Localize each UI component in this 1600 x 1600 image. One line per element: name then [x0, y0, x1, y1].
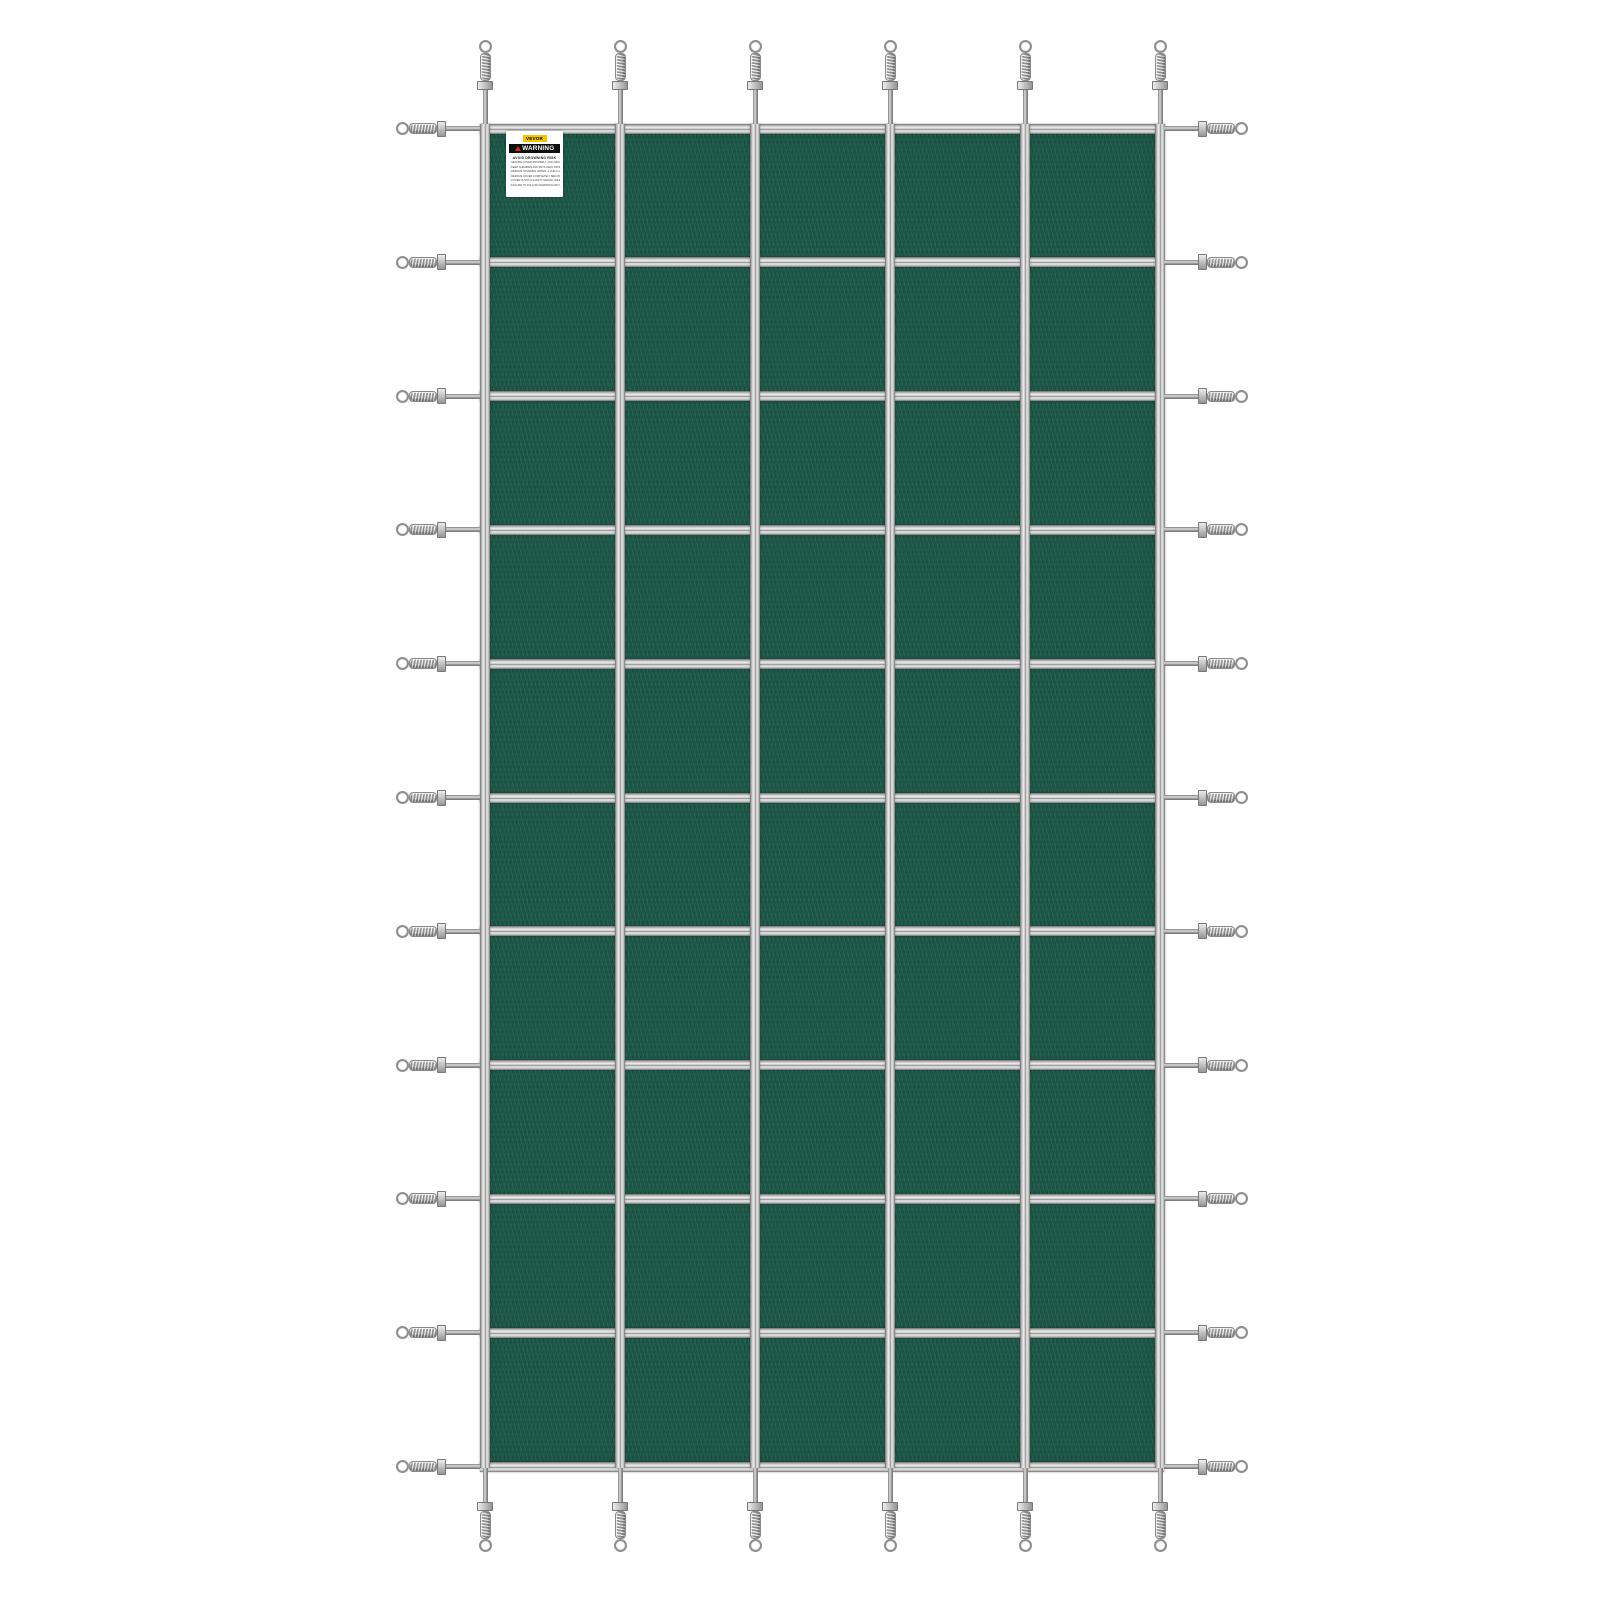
- ring: [1019, 40, 1032, 53]
- spring-anchor: [396, 254, 480, 270]
- horizontal-strap: [480, 391, 1164, 401]
- buckle: [747, 1502, 763, 1511]
- strap-tail: [753, 1468, 758, 1502]
- ring: [614, 1539, 627, 1552]
- coil: [1207, 391, 1235, 402]
- spring-anchor: [1164, 254, 1248, 270]
- strap-tail: [446, 1063, 480, 1068]
- strap-tail: [618, 1468, 623, 1502]
- ring: [396, 256, 409, 269]
- product-photo: VEVOR WARNING AVOID DROWNING RISK • SECU…: [0, 0, 1600, 1600]
- coil: [409, 926, 437, 937]
- ring: [749, 40, 762, 53]
- strap-tail: [618, 90, 623, 124]
- buckle: [1198, 1057, 1207, 1073]
- strap-tail: [446, 126, 480, 131]
- strap-tail: [1164, 929, 1198, 934]
- buckle: [1198, 121, 1207, 137]
- buckle: [1198, 656, 1207, 672]
- buckle: [747, 81, 763, 90]
- strap-tail: [1164, 260, 1198, 265]
- warning-bar: WARNING: [509, 144, 560, 153]
- buckle: [437, 1057, 446, 1073]
- strap-tail: [1023, 90, 1028, 124]
- spring-anchor: [612, 1468, 628, 1552]
- strap-tail: [1158, 90, 1163, 124]
- coil: [1207, 658, 1235, 669]
- horizontal-strap: [480, 124, 1164, 134]
- buckle: [437, 522, 446, 538]
- buckle: [1017, 1502, 1033, 1511]
- coil: [409, 1327, 437, 1338]
- ring: [1019, 1539, 1032, 1552]
- spring-anchor: [396, 121, 480, 137]
- horizontal-strap: [480, 525, 1164, 535]
- coil: [409, 257, 437, 268]
- coil: [1155, 1511, 1166, 1539]
- coil: [409, 123, 437, 134]
- ring: [614, 40, 627, 53]
- horizontal-strap: [480, 926, 1164, 936]
- coil: [409, 1461, 437, 1472]
- coil: [1207, 792, 1235, 803]
- spring-anchor: [1164, 121, 1248, 137]
- ring: [1154, 1539, 1167, 1552]
- ring: [1235, 122, 1248, 135]
- spring-anchor: [396, 1057, 480, 1073]
- ring: [479, 40, 492, 53]
- coil: [615, 1511, 626, 1539]
- strap-tail: [1164, 661, 1198, 666]
- ring: [1154, 40, 1167, 53]
- strap-tail: [1164, 394, 1198, 399]
- spring-anchor: [1164, 522, 1248, 538]
- strap-tail: [1164, 1464, 1198, 1469]
- warning-triangle-icon: [515, 146, 521, 151]
- spring-anchor: [396, 388, 480, 404]
- spring-anchor: [396, 1459, 480, 1475]
- horizontal-strap: [480, 793, 1164, 803]
- coil: [1155, 53, 1166, 81]
- spring-anchor: [747, 1468, 763, 1552]
- buckle: [477, 1502, 493, 1511]
- spring-anchor: [477, 40, 493, 124]
- coil: [615, 53, 626, 81]
- warning-text-block: • SECURE COVER PROPERLY. NON-SECURED OR …: [506, 160, 563, 189]
- warning-title: WARNING: [522, 145, 554, 152]
- ring: [396, 657, 409, 670]
- ring: [1235, 1460, 1248, 1473]
- ring: [1235, 657, 1248, 670]
- spring-anchor: [1164, 1057, 1248, 1073]
- ring: [396, 1460, 409, 1473]
- strap-tail: [446, 1464, 480, 1469]
- ring: [396, 791, 409, 804]
- spring-anchor: [1164, 923, 1248, 939]
- buckle: [1198, 254, 1207, 270]
- ring: [1235, 1192, 1248, 1205]
- spring-anchor: [1017, 40, 1033, 124]
- coil: [1207, 1461, 1235, 1472]
- strap-tail: [753, 90, 758, 124]
- coil: [409, 1060, 437, 1071]
- buckle: [1152, 1502, 1168, 1511]
- spring-anchor: [747, 40, 763, 124]
- strap-tail: [446, 1330, 480, 1335]
- strap-tail: [1023, 1468, 1028, 1502]
- strap-tail: [446, 661, 480, 666]
- ring: [396, 122, 409, 135]
- ring: [396, 1059, 409, 1072]
- spring-anchor: [1164, 388, 1248, 404]
- buckle: [437, 923, 446, 939]
- vertical-strap: [750, 124, 760, 1468]
- ring: [1235, 523, 1248, 536]
- spring-anchor: [1164, 1459, 1248, 1475]
- warning-subtitle: AVOID DROWNING RISK: [506, 156, 563, 160]
- ring: [396, 523, 409, 536]
- coil: [750, 53, 761, 81]
- vertical-strap: [1020, 124, 1030, 1468]
- buckle: [437, 656, 446, 672]
- strap-tail: [1164, 1196, 1198, 1201]
- buckle: [437, 1325, 446, 1341]
- spring-anchor: [396, 1325, 480, 1341]
- buckle: [437, 254, 446, 270]
- coil: [1207, 1060, 1235, 1071]
- buckle: [1198, 1325, 1207, 1341]
- buckle: [437, 121, 446, 137]
- strap-tail: [446, 1196, 480, 1201]
- spring-anchor: [1152, 1468, 1168, 1552]
- buckle: [1198, 1191, 1207, 1207]
- buckle: [612, 1502, 628, 1511]
- strap-tail: [446, 527, 480, 532]
- brand-badge: VEVOR: [523, 135, 547, 142]
- ring: [396, 390, 409, 403]
- strap-tail: [446, 260, 480, 265]
- coil: [409, 658, 437, 669]
- spring-anchor: [1017, 1468, 1033, 1552]
- coil: [750, 1511, 761, 1539]
- horizontal-strap: [480, 1462, 1164, 1472]
- buckle: [1017, 81, 1033, 90]
- spring-anchor: [396, 923, 480, 939]
- warning-line: • FAILURE TO FOLLOW WARNINGS MAY RESULT …: [510, 184, 560, 189]
- strap-tail: [1158, 1468, 1163, 1502]
- ring: [1235, 256, 1248, 269]
- buckle: [882, 81, 898, 90]
- warning-label: VEVOR WARNING AVOID DROWNING RISK • SECU…: [506, 131, 563, 197]
- horizontal-strap: [480, 257, 1164, 267]
- coil: [1207, 524, 1235, 535]
- buckle: [477, 81, 493, 90]
- spring-anchor: [477, 1468, 493, 1552]
- spring-anchor: [882, 1468, 898, 1552]
- warning-line: • SECURE COVER PROPERLY. NON-SECURED OR …: [510, 161, 560, 166]
- strap-tail: [888, 1468, 893, 1502]
- strap-tail: [1164, 126, 1198, 131]
- vertical-strap: [885, 124, 895, 1468]
- buckle: [1152, 81, 1168, 90]
- coil: [480, 1511, 491, 1539]
- coil: [1207, 257, 1235, 268]
- strap-tail: [483, 1468, 488, 1502]
- strap-tail: [446, 929, 480, 934]
- spring-anchor: [1164, 1325, 1248, 1341]
- horizontal-strap: [480, 1328, 1164, 1338]
- spring-anchor: [1152, 40, 1168, 124]
- strap-tail: [483, 90, 488, 124]
- vertical-strap: [615, 124, 625, 1468]
- coil: [409, 524, 437, 535]
- buckle: [1198, 923, 1207, 939]
- ring: [1235, 791, 1248, 804]
- strap-tail: [446, 795, 480, 800]
- vertical-strap: [480, 124, 490, 1468]
- horizontal-strap: [480, 659, 1164, 669]
- ring: [749, 1539, 762, 1552]
- buckle: [1198, 522, 1207, 538]
- coil: [409, 391, 437, 402]
- horizontal-strap: [480, 1060, 1164, 1070]
- ring: [396, 1192, 409, 1205]
- strap-tail: [888, 90, 893, 124]
- buckle: [612, 81, 628, 90]
- ring: [479, 1539, 492, 1552]
- buckle: [1198, 388, 1207, 404]
- spring-anchor: [396, 1191, 480, 1207]
- strap-tail: [1164, 1330, 1198, 1335]
- buckle: [437, 388, 446, 404]
- warning-line: • COVER IS NOT A SAFETY DEVICE UNLESS FU…: [510, 179, 560, 184]
- coil: [885, 53, 896, 81]
- coil: [409, 1193, 437, 1204]
- ring: [884, 1539, 897, 1552]
- coil: [1207, 926, 1235, 937]
- coil: [1020, 53, 1031, 81]
- spring-anchor: [612, 40, 628, 124]
- ring: [396, 1326, 409, 1339]
- buckle: [437, 790, 446, 806]
- strap-tail: [446, 394, 480, 399]
- coil: [1207, 123, 1235, 134]
- horizontal-strap: [480, 1194, 1164, 1204]
- spring-anchor: [1164, 1191, 1248, 1207]
- spring-anchor: [1164, 790, 1248, 806]
- ring: [1235, 1059, 1248, 1072]
- spring-anchor: [396, 522, 480, 538]
- ring: [1235, 390, 1248, 403]
- ring: [1235, 1326, 1248, 1339]
- buckle: [1198, 790, 1207, 806]
- coil: [1207, 1327, 1235, 1338]
- strap-tail: [1164, 795, 1198, 800]
- buckle: [437, 1459, 446, 1475]
- spring-anchor: [396, 656, 480, 672]
- buckle: [1198, 1459, 1207, 1475]
- coil: [480, 53, 491, 81]
- ring: [1235, 925, 1248, 938]
- spring-anchor: [396, 790, 480, 806]
- coil: [885, 1511, 896, 1539]
- buckle: [437, 1191, 446, 1207]
- spring-anchor: [1164, 656, 1248, 672]
- coil: [409, 792, 437, 803]
- strap-tail: [1164, 527, 1198, 532]
- ring: [884, 40, 897, 53]
- spring-anchor: [882, 40, 898, 124]
- strap-tail: [1164, 1063, 1198, 1068]
- warning-line: • REMOVE STANDING WATER. A CHILD CAN DRO…: [510, 170, 560, 175]
- ring: [396, 925, 409, 938]
- buckle: [882, 1502, 898, 1511]
- coil: [1207, 1193, 1235, 1204]
- coil: [1020, 1511, 1031, 1539]
